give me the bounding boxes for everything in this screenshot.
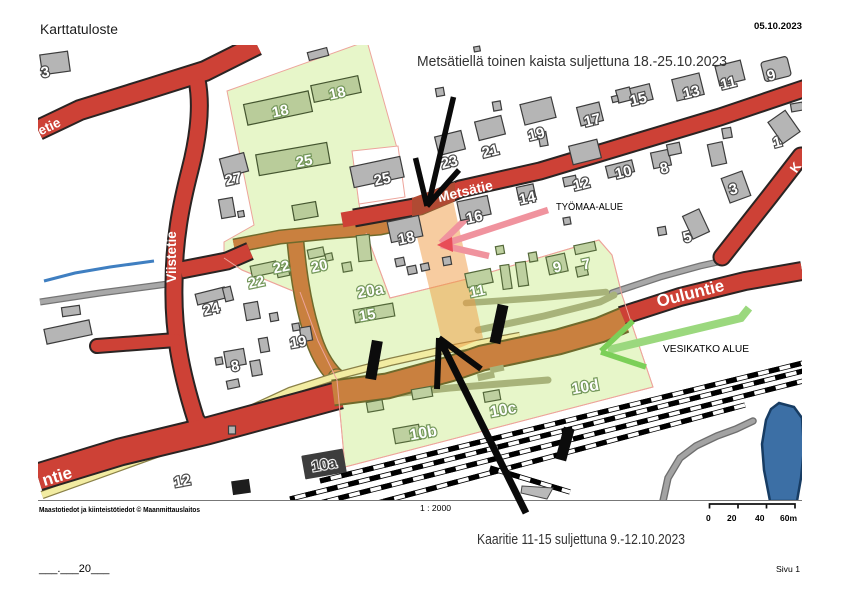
svg-text:22: 22 xyxy=(271,257,291,277)
svg-text:05.10.2023: 05.10.2023 xyxy=(754,21,802,32)
svg-text:Metsätiellä toinen kaista sulj: Metsätiellä toinen kaista suljettuna 18.… xyxy=(417,54,727,70)
svg-text:20: 20 xyxy=(309,256,329,276)
svg-text:Karttatuloste: Karttatuloste xyxy=(40,22,118,37)
svg-text:TYÖMAA-ALUE: TYÖMAA-ALUE xyxy=(556,201,623,213)
svg-text:18: 18 xyxy=(270,101,290,121)
svg-text:12: 12 xyxy=(173,472,192,492)
svg-text:25: 25 xyxy=(372,169,392,189)
svg-text:0: 0 xyxy=(706,513,711,523)
svg-text:Maastotiedot ja kiinteistötied: Maastotiedot ja kiinteistötiedot © Maanm… xyxy=(39,506,200,514)
svg-text:19: 19 xyxy=(289,333,308,353)
svg-text:1 : 2000: 1 : 2000 xyxy=(420,503,451,513)
svg-text:Viistetie: Viistetie xyxy=(164,231,179,283)
svg-text:15: 15 xyxy=(358,306,377,326)
svg-text:25: 25 xyxy=(295,152,314,172)
svg-text:___.___20___: ___.___20___ xyxy=(38,563,110,575)
svg-text:VESIKATKO ALUE: VESIKATKO ALUE xyxy=(663,344,749,355)
svg-text:18: 18 xyxy=(327,83,347,103)
svg-text:20: 20 xyxy=(727,513,737,523)
svg-text:Kaaritie 11-15 suljettuna 9.-1: Kaaritie 11-15 suljettuna 9.-12.10.2023 xyxy=(477,532,685,548)
svg-text:Sivu 1: Sivu 1 xyxy=(776,564,800,574)
svg-text:27: 27 xyxy=(223,169,243,189)
svg-text:18: 18 xyxy=(396,228,416,248)
svg-text:22: 22 xyxy=(246,272,266,292)
svg-text:60m: 60m xyxy=(780,513,797,523)
svg-text:40: 40 xyxy=(755,513,765,523)
svg-text:16: 16 xyxy=(464,207,484,227)
